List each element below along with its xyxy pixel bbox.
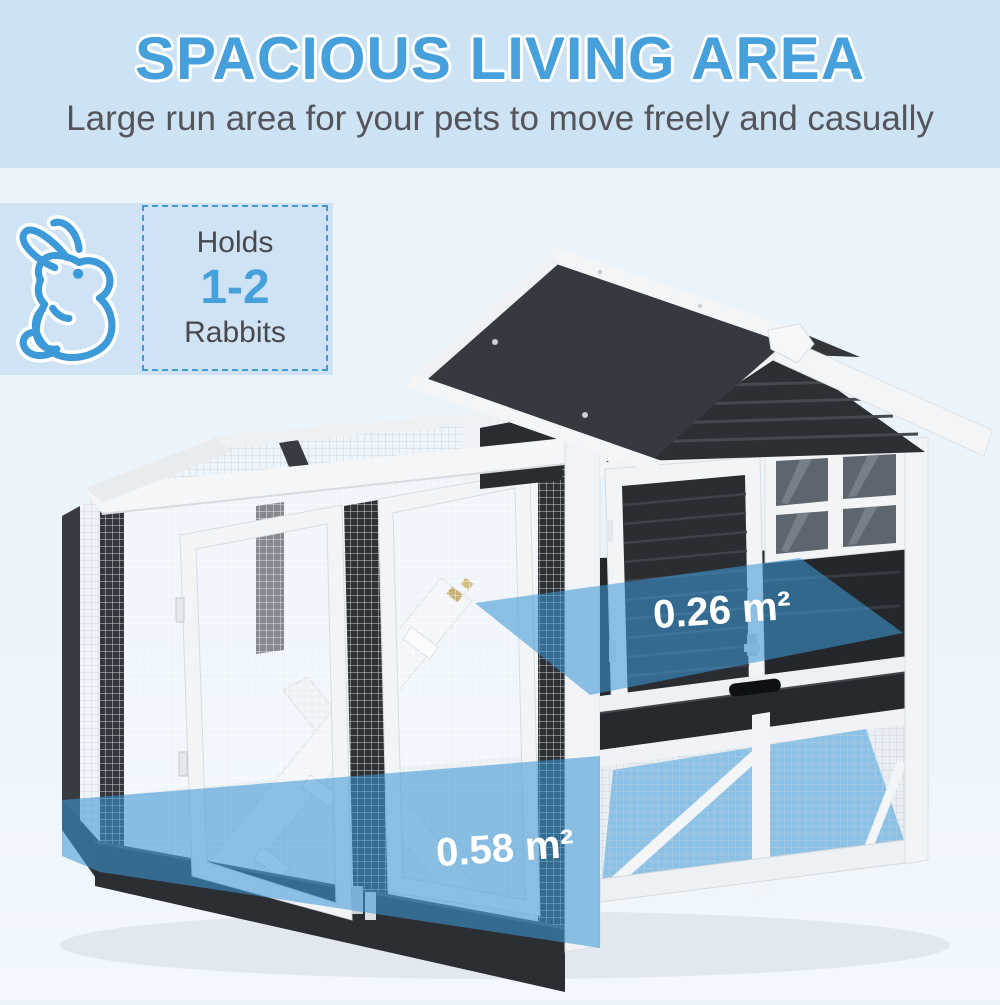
- house-windows: [765, 441, 906, 563]
- door-hinge: [176, 598, 184, 622]
- area-label-upper: 0.26 m²: [652, 584, 793, 639]
- house-right-post: [905, 437, 928, 864]
- house-section: [565, 436, 928, 952]
- area-label-lower: 0.58 m²: [435, 822, 576, 877]
- door-hinge-2: [179, 752, 187, 776]
- house-door-hinge: [606, 520, 613, 542]
- marketing-image: { "header": { "title": "SPACIOUS LIVING …: [0, 0, 1000, 1000]
- product-illustration: 0.26 m² 0.58 m²: [0, 0, 1000, 1000]
